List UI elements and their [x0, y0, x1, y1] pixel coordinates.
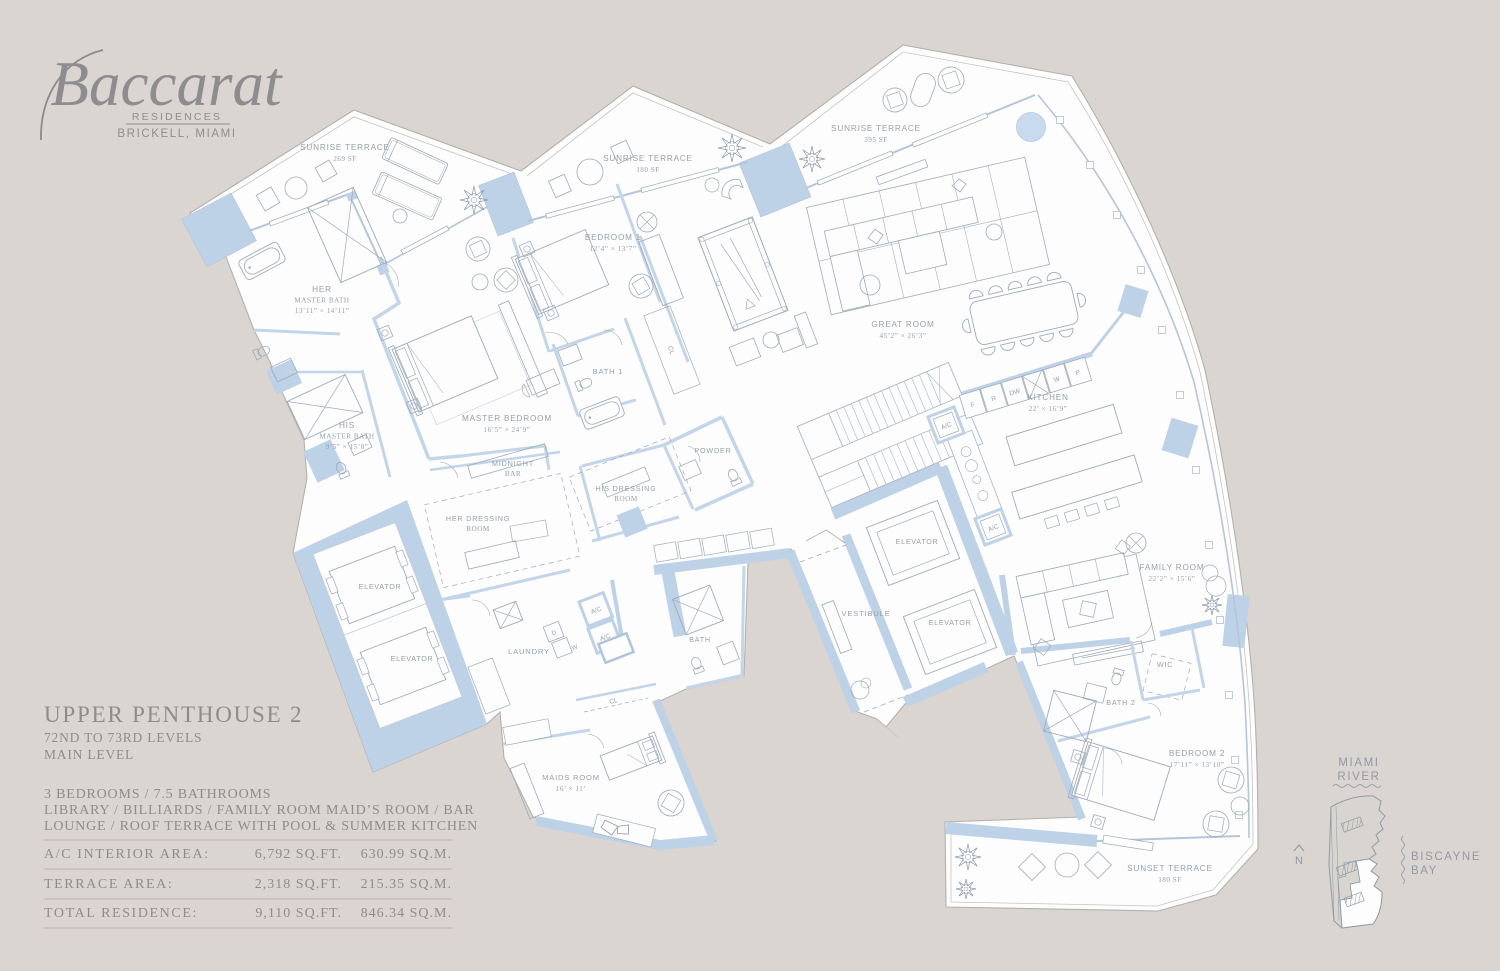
svg-text:N: N [1295, 855, 1303, 867]
svg-text:22’2” × 15’6”: 22’2” × 15’6” [1149, 575, 1196, 583]
svg-text:HER DRESSING: HER DRESSING [446, 514, 510, 523]
svg-text:ROOM: ROOM [614, 495, 638, 503]
svg-text:RESIDENCES: RESIDENCES [132, 111, 222, 123]
svg-text:RIVER: RIVER [1337, 771, 1380, 783]
svg-text:MIAMI: MIAMI [1338, 757, 1379, 769]
svg-text:22’ × 16’9”: 22’ × 16’9” [1029, 405, 1068, 413]
svg-text:HER: HER [312, 285, 332, 294]
svg-text:SUNRISE TERRACE: SUNRISE TERRACE [831, 124, 921, 133]
svg-text:72ND TO 73RD LEVELS: 72ND TO 73RD LEVELS [44, 730, 202, 745]
svg-text:MASTER BATH: MASTER BATH [319, 433, 374, 441]
svg-text:VESTIBULE: VESTIBULE [842, 609, 891, 618]
svg-text:16’5” × 24’9”: 16’5” × 24’9” [484, 426, 531, 434]
svg-text:SUNSET TERRACE: SUNSET TERRACE [1127, 864, 1213, 873]
svg-text:9’5” × 15’8”: 9’5” × 15’8” [326, 443, 369, 451]
svg-text:POWDER: POWDER [694, 446, 731, 455]
svg-text:MIDNIGHT: MIDNIGHT [492, 459, 534, 468]
svg-text:ELEVATOR: ELEVATOR [391, 654, 434, 663]
svg-text:GREAT ROOM: GREAT ROOM [871, 320, 934, 329]
svg-text:FAMILY ROOM: FAMILY ROOM [1140, 563, 1205, 572]
svg-text:MAIDS ROOM: MAIDS ROOM [542, 773, 600, 782]
svg-text:LIBRARY / BILLIARDS / FAMILY R: LIBRARY / BILLIARDS / FAMILY ROOM MAID’S… [44, 803, 475, 818]
svg-text:A/C INTERIOR AREA:: A/C INTERIOR AREA: [44, 847, 210, 862]
svg-text:6,792 SQ.FT.: 6,792 SQ.FT. [255, 847, 342, 862]
svg-text:SUNRISE TERRACE: SUNRISE TERRACE [603, 154, 693, 163]
svg-text:16’ × 11’: 16’ × 11’ [556, 785, 587, 793]
svg-text:215.35 SQ.M.: 215.35 SQ.M. [361, 877, 452, 892]
svg-text:3 BEDROOMS / 7.5 BATHROOMS: 3 BEDROOMS / 7.5 BATHROOMS [44, 787, 271, 802]
svg-text:ELEVATOR: ELEVATOR [359, 582, 402, 591]
svg-text:846.34 SQ.M.: 846.34 SQ.M. [361, 906, 452, 921]
svg-text:9,110 SQ.FT.: 9,110 SQ.FT. [255, 906, 342, 921]
svg-text:BAY: BAY [1411, 865, 1438, 877]
svg-text:KITCHEN: KITCHEN [1027, 393, 1069, 402]
svg-text:BATH 2: BATH 2 [1106, 698, 1135, 707]
svg-text:BEDROOM 1: BEDROOM 1 [585, 233, 641, 242]
svg-text:ELEVATOR: ELEVATOR [929, 618, 972, 627]
svg-text:LAUNDRY: LAUNDRY [508, 647, 550, 656]
svg-text:MAIN LEVEL: MAIN LEVEL [44, 747, 134, 762]
svg-text:BATH 1: BATH 1 [593, 367, 624, 376]
svg-text:ROOM: ROOM [466, 525, 490, 533]
svg-text:45’2” × 26’3”: 45’2” × 26’3” [880, 332, 927, 340]
svg-text:SUNRISE TERRACE: SUNRISE TERRACE [300, 143, 390, 152]
svg-text:2,318 SQ.FT.: 2,318 SQ.FT. [255, 877, 342, 892]
svg-text:MASTER BEDROOM: MASTER BEDROOM [462, 414, 552, 423]
svg-text:TOTAL RESIDENCE:: TOTAL RESIDENCE: [44, 906, 198, 921]
svg-text:UPPER PENTHOUSE 2: UPPER PENTHOUSE 2 [44, 702, 303, 727]
svg-text:17’11” × 13’10”: 17’11” × 13’10” [1170, 761, 1225, 769]
svg-text:395 SF: 395 SF [864, 136, 888, 144]
svg-text:BEDROOM 2: BEDROOM 2 [1169, 749, 1225, 758]
svg-text:LOUNGE / ROOF TERRACE WITH POO: LOUNGE / ROOF TERRACE WITH POOL & SUMMER… [44, 819, 478, 834]
svg-text:HIS DRESSING: HIS DRESSING [595, 484, 656, 493]
svg-text:269 SF: 269 SF [333, 155, 357, 163]
svg-text:630.99 SQ.M.: 630.99 SQ.M. [361, 847, 452, 862]
svg-text:180 SF: 180 SF [636, 166, 660, 174]
svg-text:MASTER BATH: MASTER BATH [294, 297, 349, 305]
svg-text:HIS: HIS [339, 421, 355, 430]
svg-text:TERRACE AREA:: TERRACE AREA: [44, 877, 173, 892]
svg-text:BISCAYNE: BISCAYNE [1411, 851, 1481, 863]
svg-text:BRICKELL, MIAMI: BRICKELL, MIAMI [117, 128, 236, 140]
svg-text:BAR: BAR [505, 470, 521, 478]
svg-text:ELEVATOR: ELEVATOR [896, 537, 939, 546]
svg-text:13’11” × 14’11”: 13’11” × 14’11” [295, 307, 350, 315]
svg-text:Baccarat: Baccarat [51, 49, 283, 119]
svg-text:12’4” × 13’7”: 12’4” × 13’7” [590, 245, 637, 253]
svg-text:BATH: BATH [689, 635, 711, 644]
svg-text:WIC: WIC [1157, 660, 1173, 669]
svg-text:180 SF: 180 SF [1158, 876, 1182, 884]
